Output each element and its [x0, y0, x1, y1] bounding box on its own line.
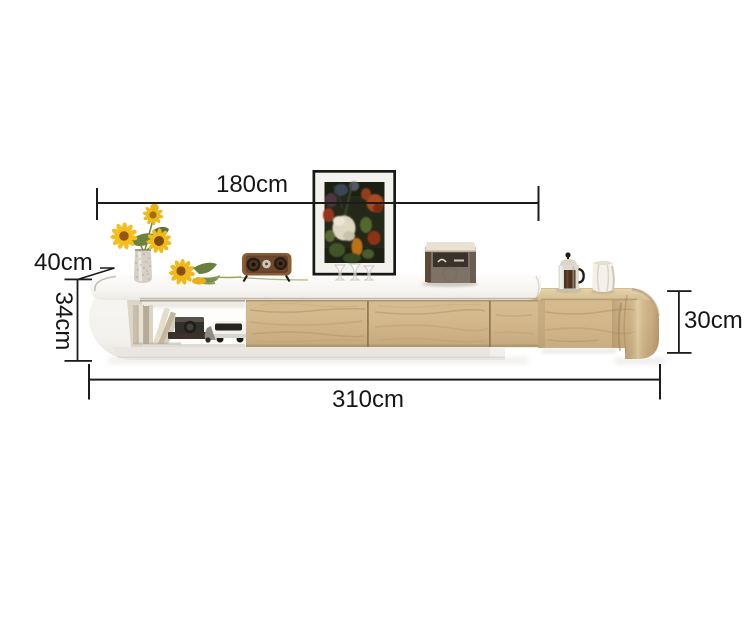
svg-text:310cm: 310cm	[332, 386, 404, 413]
svg-text:30cm: 30cm	[684, 307, 743, 334]
svg-text:180cm: 180cm	[216, 171, 288, 198]
svg-text:40cm: 40cm	[34, 249, 93, 276]
svg-text:34cm: 34cm	[50, 292, 77, 351]
